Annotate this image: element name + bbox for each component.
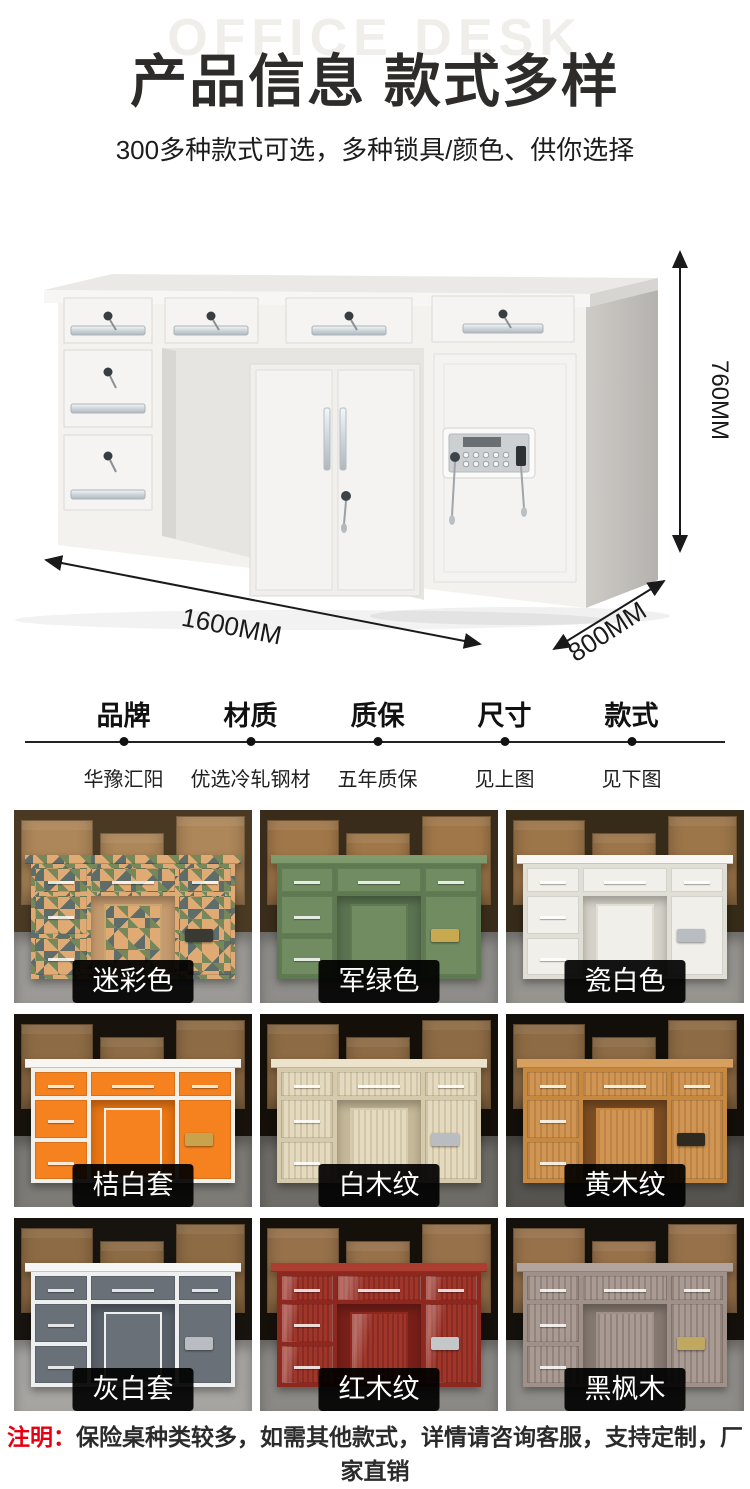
spec-value: 见上图 (475, 763, 535, 792)
spec-col-material: 材质 优选冷轧钢材 (187, 688, 314, 792)
spec-label: 款式 (605, 694, 659, 733)
drawer (527, 1100, 579, 1138)
drawer (671, 1276, 723, 1300)
product-dimension-image: 760MM 1600MM 800MM (0, 228, 750, 673)
style-tile-yellow-wood[interactable]: 黄木纹 (506, 1014, 744, 1207)
drawer (281, 1276, 333, 1300)
drawer (527, 1276, 579, 1300)
spec-label: 尺寸 (478, 694, 532, 733)
drawer (337, 868, 421, 892)
spec-dot (500, 737, 509, 746)
spec-value: 见下图 (602, 763, 662, 792)
style-label: 红木纹 (319, 1368, 440, 1411)
drawer (425, 868, 477, 892)
drawer (91, 1276, 175, 1300)
height-dimension-label: 760MM (706, 360, 733, 440)
drawer (35, 1276, 87, 1300)
desk-top (271, 855, 487, 864)
drawer (91, 868, 175, 892)
drawer (281, 896, 333, 934)
spec-dot (119, 737, 128, 746)
drawer (35, 896, 87, 934)
style-tile-gray-white[interactable]: 灰白套 (14, 1218, 252, 1411)
style-options-grid: 迷彩色 (14, 810, 744, 1411)
spec-col-warranty: 质保 五年质保 (314, 688, 441, 792)
style-label: 瓷白色 (565, 960, 686, 1003)
desk-top (517, 1059, 733, 1068)
style-label: 灰白套 (73, 1368, 194, 1411)
drawer (583, 1276, 667, 1300)
electronic-lock (677, 1133, 705, 1146)
electronic-lock (431, 929, 459, 942)
drawer (425, 1276, 477, 1300)
spec-value: 优选冷轧钢材 (191, 763, 311, 792)
desk-top (25, 1059, 241, 1068)
drawer (281, 1100, 333, 1138)
style-tile-black-maple[interactable]: 黑枫木 (506, 1218, 744, 1411)
drawer (527, 868, 579, 892)
style-label: 迷彩色 (73, 960, 194, 1003)
drawer (281, 1072, 333, 1096)
spec-label: 品牌 (97, 694, 151, 733)
note-text: 保险桌种类较多，如需其他款式，详情请咨询客服，支持定制，厂家直销 (76, 1424, 743, 1484)
drawer (337, 1072, 421, 1096)
style-label: 黑枫木 (565, 1368, 686, 1411)
spec-dot (627, 737, 636, 746)
spec-dot (373, 737, 382, 746)
drawer (527, 1304, 579, 1342)
spec-col-style: 款式 见下图 (568, 688, 695, 792)
width-dimension-label: 1600MM (179, 602, 284, 651)
drawer (337, 1276, 421, 1300)
style-tile-army-green[interactable]: 军绿色 (260, 810, 498, 1003)
note-prefix: 注明： (7, 1424, 76, 1450)
drawer (527, 896, 579, 934)
drawer (179, 1072, 231, 1096)
desk-top (271, 1263, 487, 1272)
spec-col-brand: 品牌 华豫汇阳 (60, 688, 187, 792)
drawer (91, 1072, 175, 1096)
drawer (35, 868, 87, 892)
drawer (281, 1304, 333, 1342)
electronic-lock (431, 1133, 459, 1146)
electronic-lock (677, 1337, 705, 1350)
desk-shadow (15, 607, 670, 630)
spec-table: 品牌 华豫汇阳 材质 优选冷轧钢材 质保 五年质保 尺寸 见上图 款式 见下图 (60, 688, 695, 792)
drawer (425, 1072, 477, 1096)
drawer (35, 1100, 87, 1138)
electronic-lock (677, 929, 705, 942)
style-label: 军绿色 (319, 960, 440, 1003)
desk-top (25, 855, 241, 864)
electronic-lock (431, 1337, 459, 1350)
electronic-lock (185, 1133, 213, 1146)
drawer (281, 868, 333, 892)
spec-label: 质保 (351, 694, 405, 733)
desk-top (517, 855, 733, 864)
style-tile-orange-white[interactable]: 桔白套 (14, 1014, 252, 1207)
style-tile-porcelain-white[interactable]: 瓷白色 (506, 810, 744, 1003)
desk-top (271, 1059, 487, 1068)
page-subtitle: 300多种款式可选，多种锁具/颜色、供你选择 (0, 130, 750, 167)
page-title: 产品信息 款式多样 (0, 36, 750, 118)
drawer (671, 868, 723, 892)
drawer (583, 868, 667, 892)
desk-illustration (44, 274, 658, 608)
bottom-note: 注明：保险桌种类较多，如需其他款式，详情请咨询客服，支持定制，厂家直销 (0, 1418, 750, 1486)
style-label: 黄木纹 (565, 1164, 686, 1207)
drawer (527, 1072, 579, 1096)
spec-value: 华豫汇阳 (84, 763, 164, 792)
spec-dot (246, 737, 255, 746)
drawer (179, 1276, 231, 1300)
style-tile-white-wood[interactable]: 白木纹 (260, 1014, 498, 1207)
drawer (35, 1072, 87, 1096)
spec-label: 材质 (224, 694, 278, 733)
drawer (35, 1304, 87, 1342)
style-tile-camouflage[interactable]: 迷彩色 (14, 810, 252, 1003)
electronic-lock (185, 1337, 213, 1350)
desk-top (517, 1263, 733, 1272)
desk-top (25, 1263, 241, 1272)
style-label: 白木纹 (319, 1164, 440, 1207)
spec-value: 五年质保 (338, 763, 418, 792)
electronic-lock (185, 929, 213, 942)
style-label: 桔白套 (73, 1164, 194, 1207)
drawer (179, 868, 231, 892)
style-tile-red-wood[interactable]: 红木纹 (260, 1218, 498, 1411)
spec-col-size: 尺寸 见上图 (441, 688, 568, 792)
drawer (583, 1072, 667, 1096)
drawer (671, 1072, 723, 1096)
